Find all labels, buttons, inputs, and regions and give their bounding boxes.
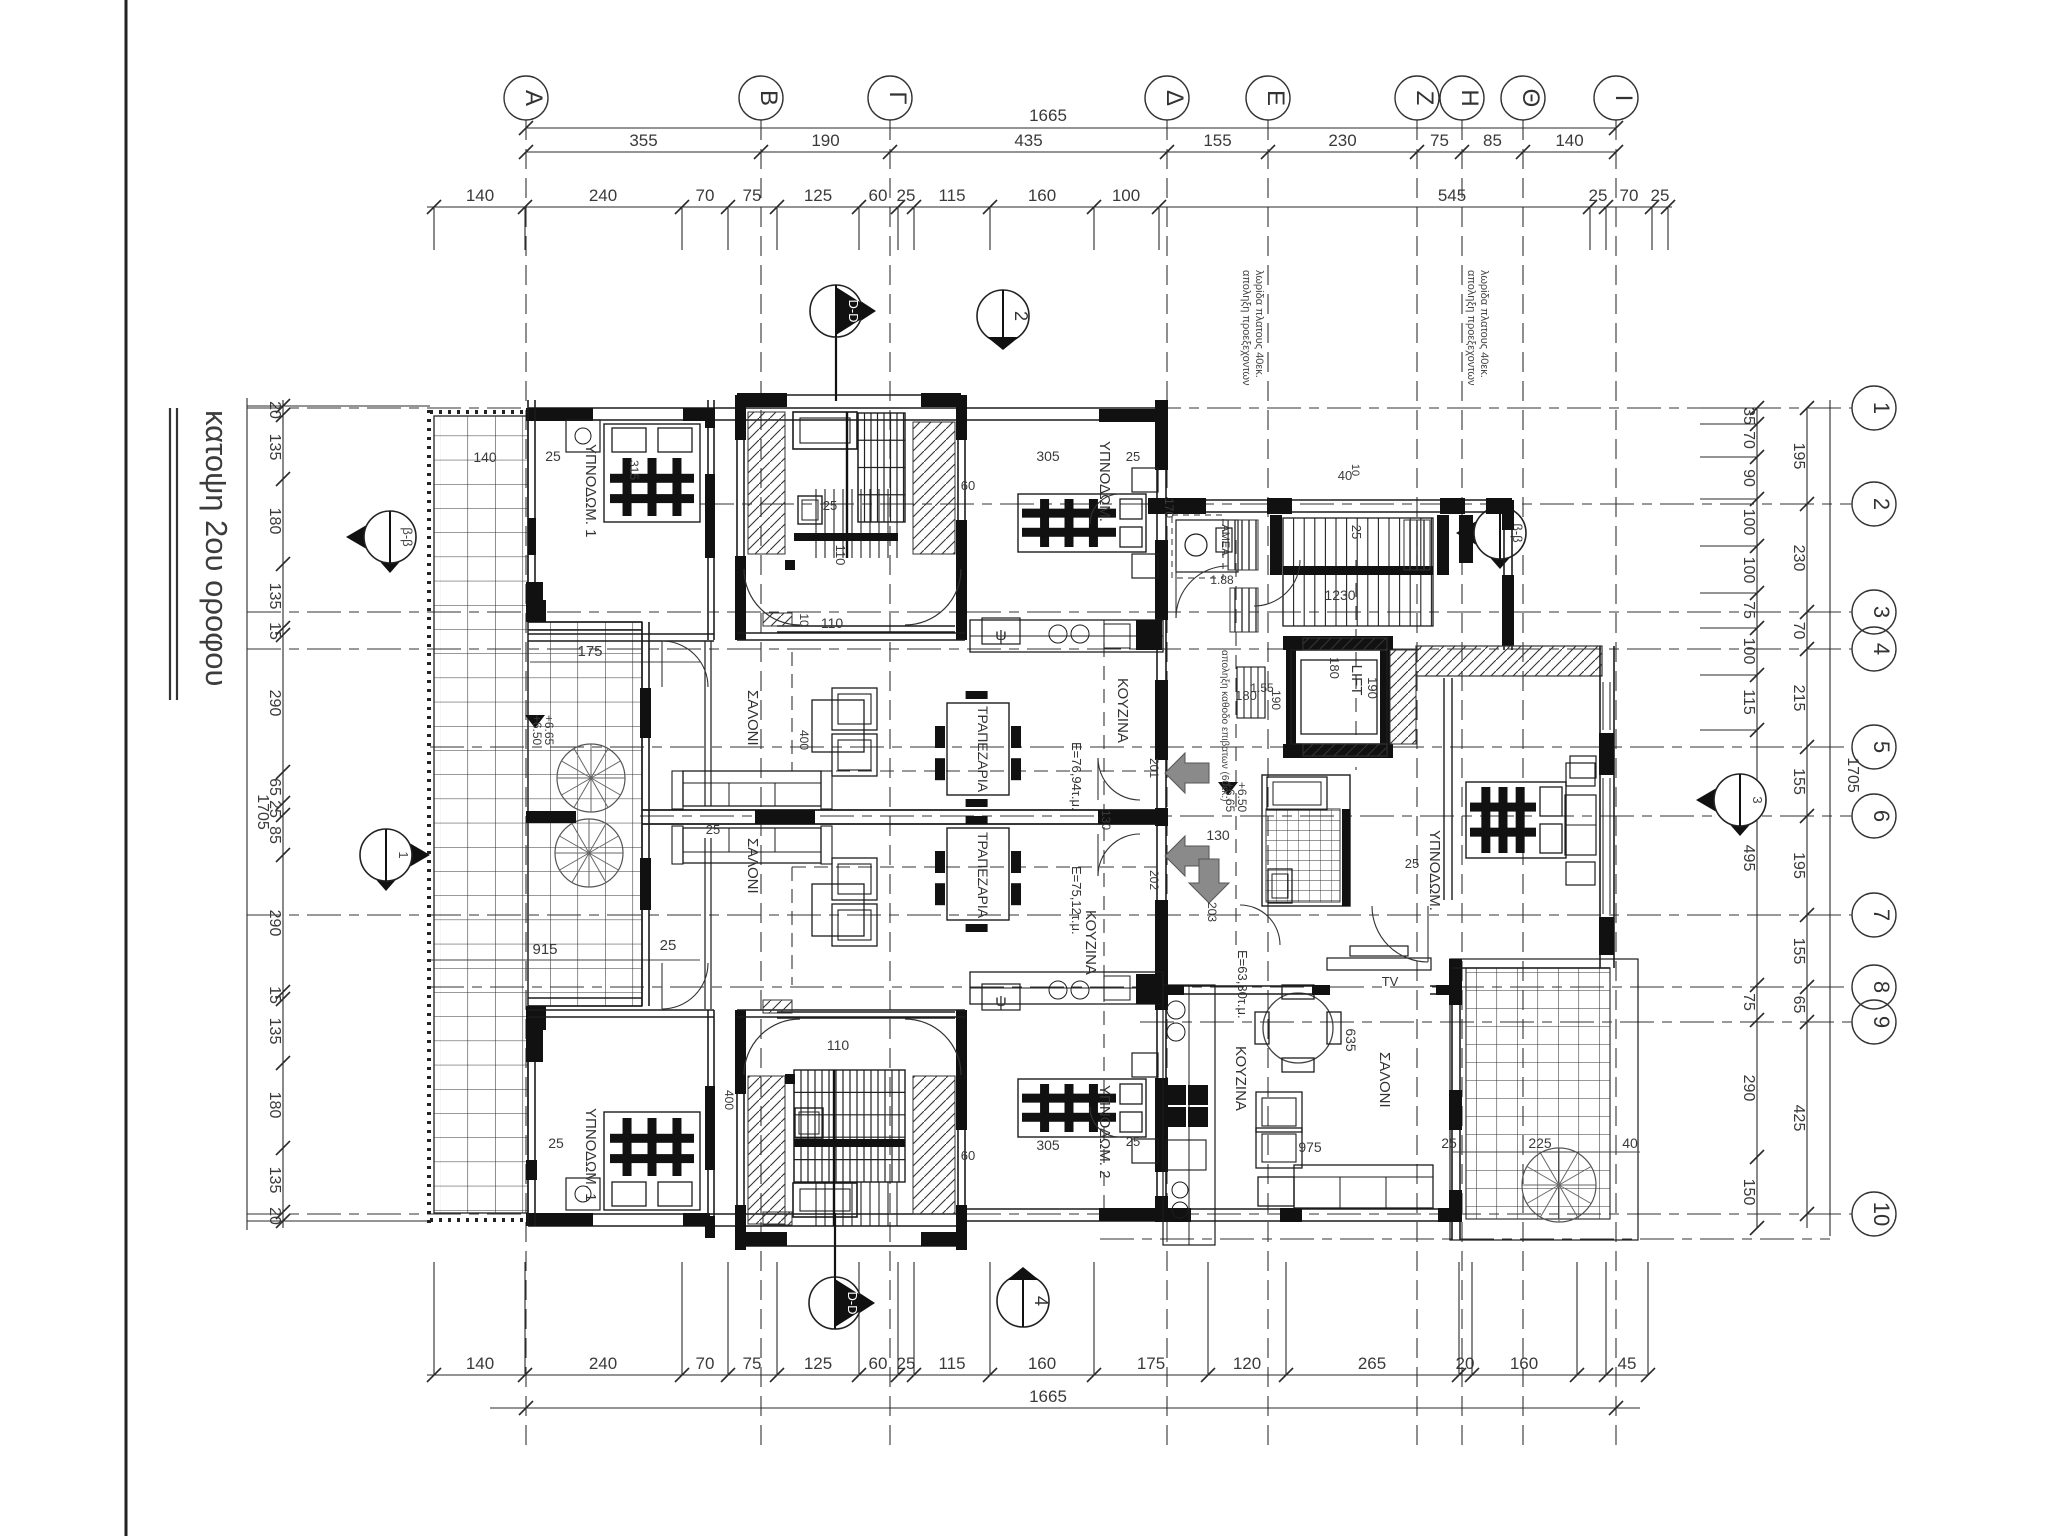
svg-text:Β: Β: [755, 90, 782, 106]
svg-text:25: 25: [1126, 1134, 1140, 1149]
svg-text:4: 4: [1869, 643, 1894, 655]
svg-text:ΣΑΛΟΝΙ: ΣΑΛΟΝΙ: [1376, 1052, 1393, 1108]
svg-text:5: 5: [1869, 741, 1894, 753]
svg-text:201: 201: [1147, 758, 1161, 778]
svg-text:100: 100: [1740, 509, 1757, 536]
svg-text:65: 65: [1790, 996, 1807, 1014]
svg-text:20: 20: [266, 1207, 283, 1225]
svg-text:435: 435: [1014, 131, 1042, 150]
svg-text:203: 203: [1205, 902, 1219, 922]
svg-text:10: 10: [1349, 464, 1361, 476]
svg-text:400: 400: [797, 730, 811, 750]
svg-text:545: 545: [1438, 186, 1466, 205]
svg-text:αποληξη προεξεχοντων: αποληξη προεξεχοντων: [1240, 270, 1252, 386]
svg-text:190: 190: [1269, 690, 1283, 710]
svg-text:155: 155: [1203, 131, 1231, 150]
svg-text:8: 8: [1869, 981, 1894, 993]
svg-text:140: 140: [473, 449, 497, 465]
svg-text:2: 2: [1869, 498, 1894, 510]
svg-text:ΥΠΝΟΔΩΜ.: ΥΠΝΟΔΩΜ.: [1096, 441, 1113, 522]
svg-text:10: 10: [1869, 1202, 1894, 1226]
svg-text:180: 180: [1327, 657, 1342, 679]
svg-text:90: 90: [1740, 469, 1757, 487]
svg-text:175: 175: [1137, 1354, 1165, 1373]
svg-text:265: 265: [1358, 1354, 1386, 1373]
svg-text:Α: Α: [520, 90, 547, 106]
svg-text:135: 135: [266, 1167, 283, 1194]
svg-text:230: 230: [1790, 545, 1807, 572]
svg-text:Ζ: Ζ: [1411, 91, 1438, 106]
svg-text:1705: 1705: [254, 794, 271, 830]
svg-text:Δ: Δ: [1161, 90, 1188, 106]
svg-text:135: 135: [266, 434, 283, 461]
svg-text:400: 400: [722, 1090, 736, 1110]
svg-text:κατοψη 2ου οροφου: κατοψη 2ου οροφου: [199, 410, 234, 687]
svg-text:6: 6: [1869, 810, 1894, 822]
svg-text:ΥΠΝΟΔΩΜ.: ΥΠΝΟΔΩΜ.: [1426, 830, 1443, 911]
svg-text:202: 202: [1147, 870, 1161, 890]
svg-text:140: 140: [466, 186, 494, 205]
svg-text:495: 495: [1740, 845, 1757, 872]
svg-text:155: 155: [1790, 768, 1807, 795]
svg-text:70: 70: [696, 1354, 715, 1373]
svg-text:1665: 1665: [1029, 106, 1067, 125]
svg-text:110: 110: [821, 615, 844, 631]
svg-text:ψ: ψ: [995, 993, 1006, 1010]
svg-text:+6.65: +6.65: [542, 715, 556, 746]
svg-text:225: 225: [1528, 1135, 1552, 1151]
svg-text:305: 305: [1036, 1137, 1060, 1153]
svg-text:25: 25: [823, 498, 837, 513]
svg-text:195: 195: [1790, 852, 1807, 879]
svg-text:ΥΠΝΟΔΩΜ. 2: ΥΠΝΟΔΩΜ. 2: [1096, 1085, 1113, 1178]
svg-text:160: 160: [1510, 1354, 1538, 1373]
svg-text:D-D: D-D: [846, 299, 861, 322]
svg-text:120: 120: [1233, 1354, 1261, 1373]
svg-text:β-β: β-β: [400, 527, 415, 546]
svg-text:25: 25: [897, 186, 916, 205]
svg-text:25: 25: [706, 822, 720, 837]
svg-text:180: 180: [1235, 688, 1257, 703]
svg-text:100: 100: [1740, 557, 1757, 584]
svg-text:25: 25: [545, 448, 561, 464]
svg-text:1.88: 1.88: [1210, 573, 1234, 587]
svg-text:240: 240: [589, 186, 617, 205]
svg-text:70: 70: [696, 186, 715, 205]
svg-text:915: 915: [532, 941, 557, 958]
svg-text:75: 75: [743, 1354, 762, 1373]
svg-text:180: 180: [266, 508, 283, 535]
svg-text:αποληξη προεξεχοντων: αποληξη προεξεχοντων: [1465, 270, 1477, 386]
svg-text:60: 60: [961, 478, 975, 493]
svg-text:635: 635: [1343, 1028, 1359, 1052]
svg-text:150: 150: [1740, 1179, 1757, 1206]
svg-text:25: 25: [1589, 186, 1608, 205]
svg-text:110: 110: [833, 545, 848, 566]
svg-text:125: 125: [804, 1354, 832, 1373]
svg-text:180: 180: [266, 1092, 283, 1119]
svg-text:E=63,30τ.μ.: E=63,30τ.μ.: [1235, 950, 1250, 1019]
svg-text:425: 425: [1790, 1105, 1807, 1132]
svg-text:130: 130: [1099, 810, 1113, 830]
svg-text:25: 25: [1651, 186, 1670, 205]
svg-text:ΥΠΝΟΔΩΜ. 1: ΥΠΝΟΔΩΜ. 1: [582, 1108, 599, 1201]
svg-text:25: 25: [1126, 449, 1140, 464]
svg-text:100: 100: [1740, 638, 1757, 665]
svg-text:135: 135: [266, 583, 283, 610]
svg-text:290: 290: [266, 910, 283, 937]
svg-text:Θ: Θ: [1517, 89, 1544, 108]
svg-text:60: 60: [961, 1148, 975, 1163]
svg-text:E=75,12τ.μ.: E=75,12τ.μ.: [1069, 866, 1084, 935]
svg-text:175: 175: [577, 643, 602, 660]
svg-text:ΤΡΑΠΕΖΑΡΙΑ: ΤΡΑΠΕΖΑΡΙΑ: [975, 832, 991, 919]
svg-text:115: 115: [938, 186, 965, 205]
svg-text:975: 975: [1298, 1139, 1322, 1155]
svg-text:125: 125: [804, 186, 832, 205]
svg-text:25: 25: [897, 1354, 916, 1373]
svg-text:60: 60: [869, 186, 888, 205]
svg-text:ΣΑΛΟΝΙ: ΣΑΛΟΝΙ: [744, 838, 761, 894]
svg-text:Η: Η: [1456, 89, 1483, 106]
svg-text:135: 135: [266, 1018, 283, 1045]
svg-text:240: 240: [589, 1354, 617, 1373]
svg-text:TV: TV: [1382, 974, 1399, 989]
svg-text:3: 3: [1869, 606, 1894, 618]
svg-text:305: 305: [1036, 448, 1060, 464]
svg-text:160: 160: [1028, 1354, 1056, 1373]
svg-text:40: 40: [1622, 1135, 1638, 1151]
svg-text:230: 230: [1328, 131, 1356, 150]
svg-text:15: 15: [266, 622, 283, 640]
svg-text:195: 195: [1790, 443, 1807, 470]
svg-text:E=76,94τ.μ.: E=76,94τ.μ.: [1069, 742, 1084, 811]
svg-text:130: 130: [1206, 827, 1230, 843]
svg-text:25: 25: [1349, 525, 1364, 539]
svg-text:1: 1: [1869, 402, 1894, 414]
svg-text:7: 7: [1869, 909, 1894, 921]
svg-text:λωρiδα πλατους 40εκ.: λωρiδα πλατους 40εκ.: [1478, 270, 1490, 378]
svg-text:25: 25: [1441, 1135, 1457, 1151]
svg-text:Γ: Γ: [884, 91, 911, 104]
svg-text:215: 215: [1790, 685, 1807, 712]
svg-text:25: 25: [1405, 856, 1419, 871]
svg-text:110: 110: [827, 1037, 850, 1053]
svg-text:2: 2: [1011, 311, 1031, 321]
svg-text:155: 155: [1790, 938, 1807, 965]
svg-text:+6.50: +6.50: [1235, 782, 1249, 813]
svg-text:140: 140: [466, 1354, 494, 1373]
svg-text:10: 10: [797, 613, 811, 627]
svg-text:140: 140: [1555, 131, 1583, 150]
svg-text:1705: 1705: [1844, 757, 1861, 793]
svg-text:1665: 1665: [1029, 1387, 1067, 1406]
svg-text:Ε: Ε: [1262, 90, 1289, 106]
svg-text:Ι: Ι: [1610, 95, 1637, 102]
svg-text:290: 290: [1740, 1075, 1757, 1102]
svg-text:ΚΟΥΖΙΝΑ: ΚΟΥΖΙΝΑ: [1232, 1046, 1249, 1111]
svg-text:190: 190: [1365, 677, 1380, 699]
svg-text:60: 60: [869, 1354, 888, 1373]
svg-text:100: 100: [1112, 186, 1140, 205]
svg-text:αποληξη καθοδο επιβατων (60εκ.: αποληξη καθοδο επιβατων (60εκ.): [1219, 650, 1230, 802]
svg-text:70: 70: [1740, 431, 1757, 449]
svg-text:4: 4: [1031, 1296, 1051, 1306]
svg-text:75: 75: [1740, 601, 1757, 619]
svg-text:25: 25: [548, 1135, 564, 1151]
svg-text:1230: 1230: [1324, 587, 1355, 603]
svg-text:ΥΠΝΟΔΩΜ. 1: ΥΠΝΟΔΩΜ. 1: [582, 444, 599, 537]
svg-text:70: 70: [1620, 186, 1639, 205]
svg-text:290: 290: [266, 690, 283, 717]
svg-text:λωρiδα πλατους 40εκ.: λωρiδα πλατους 40εκ.: [1253, 270, 1265, 378]
svg-text:D-D: D-D: [845, 1291, 860, 1314]
svg-text:70: 70: [1790, 622, 1807, 640]
svg-text:85: 85: [1483, 131, 1502, 150]
svg-text:3: 3: [1750, 796, 1765, 803]
svg-text:160: 160: [1028, 186, 1056, 205]
svg-text:75: 75: [1740, 993, 1757, 1011]
svg-text:355: 355: [629, 131, 657, 150]
svg-text:ΤΡΑΠΕΖΑΡΙΑ: ΤΡΑΠΕΖΑΡΙΑ: [975, 706, 991, 793]
svg-text:15: 15: [266, 986, 283, 1004]
svg-text:315: 315: [627, 460, 641, 480]
svg-text:115: 115: [938, 1354, 965, 1373]
svg-text:ΣΑΛΟΝΙ: ΣΑΛΟΝΙ: [744, 690, 761, 746]
svg-text:LIFT: LIFT: [1348, 665, 1365, 696]
svg-text:170: 170: [1162, 498, 1176, 518]
svg-text:45: 45: [1618, 1354, 1637, 1373]
svg-text:+6.50: +6.50: [530, 715, 544, 746]
svg-text:115: 115: [1740, 689, 1757, 715]
svg-text:75: 75: [743, 186, 762, 205]
svg-text:9: 9: [1869, 1016, 1894, 1028]
svg-text:190: 190: [811, 131, 839, 150]
svg-text:ψ: ψ: [995, 627, 1006, 644]
svg-text:35: 35: [1740, 407, 1757, 425]
svg-text:1: 1: [396, 851, 411, 858]
svg-text:20: 20: [266, 401, 283, 419]
svg-text:ΚΟΥΖΙΝΑ: ΚΟΥΖΙΝΑ: [1114, 678, 1131, 743]
svg-text:25: 25: [660, 937, 677, 954]
svg-text:75: 75: [1430, 131, 1449, 150]
